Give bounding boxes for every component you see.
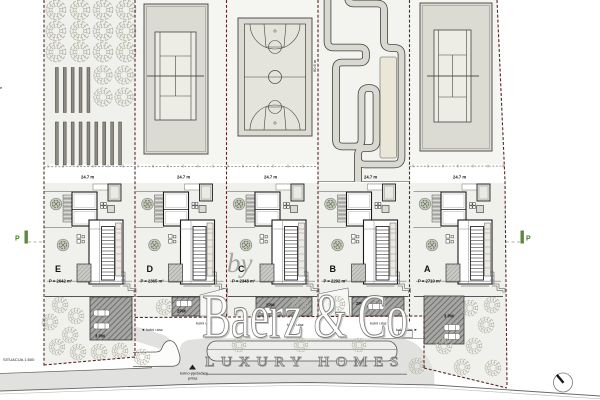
svg-text:SITUACIJA 1:500: SITUACIJA 1:500 [3,357,35,362]
svg-text:P = 2642 m²: P = 2642 m² [49,279,73,284]
svg-text:24.7 m: 24.7 m [81,175,94,180]
svg-text:A: A [424,264,431,274]
svg-text:24.7 m: 24.7 m [453,175,466,180]
svg-text:◄ kolni ulaz: ◄ kolni ulaz [141,327,163,332]
svg-text:60.6 m: 60.6 m [312,59,317,72]
svg-text:P = 2710 m²: P = 2710 m² [418,279,442,284]
svg-text:24.7 m: 24.7 m [364,175,377,180]
svg-text:3 PM: 3 PM [444,314,454,319]
svg-text:P: P [15,236,20,243]
svg-text:by: by [227,248,253,278]
svg-text:B: B [330,264,337,274]
svg-text:24.7 m: 24.7 m [177,175,190,180]
svg-text:D: D [147,264,154,274]
svg-text:3 PM: 3 PM [95,334,105,339]
svg-text:E: E [55,264,61,274]
svg-text:Baerz & Co: Baerz & Co [202,283,408,351]
svg-text:LUXURY HOMES: LUXURY HOMES [205,355,405,370]
svg-text:P: P [526,236,531,243]
svg-text:prilaz: prilaz [188,376,198,381]
svg-text:P = 2365 m²: P = 2365 m² [141,279,165,284]
svg-text:2PM: 2PM [177,309,186,314]
svg-text:24.7 m: 24.7 m [264,175,277,180]
